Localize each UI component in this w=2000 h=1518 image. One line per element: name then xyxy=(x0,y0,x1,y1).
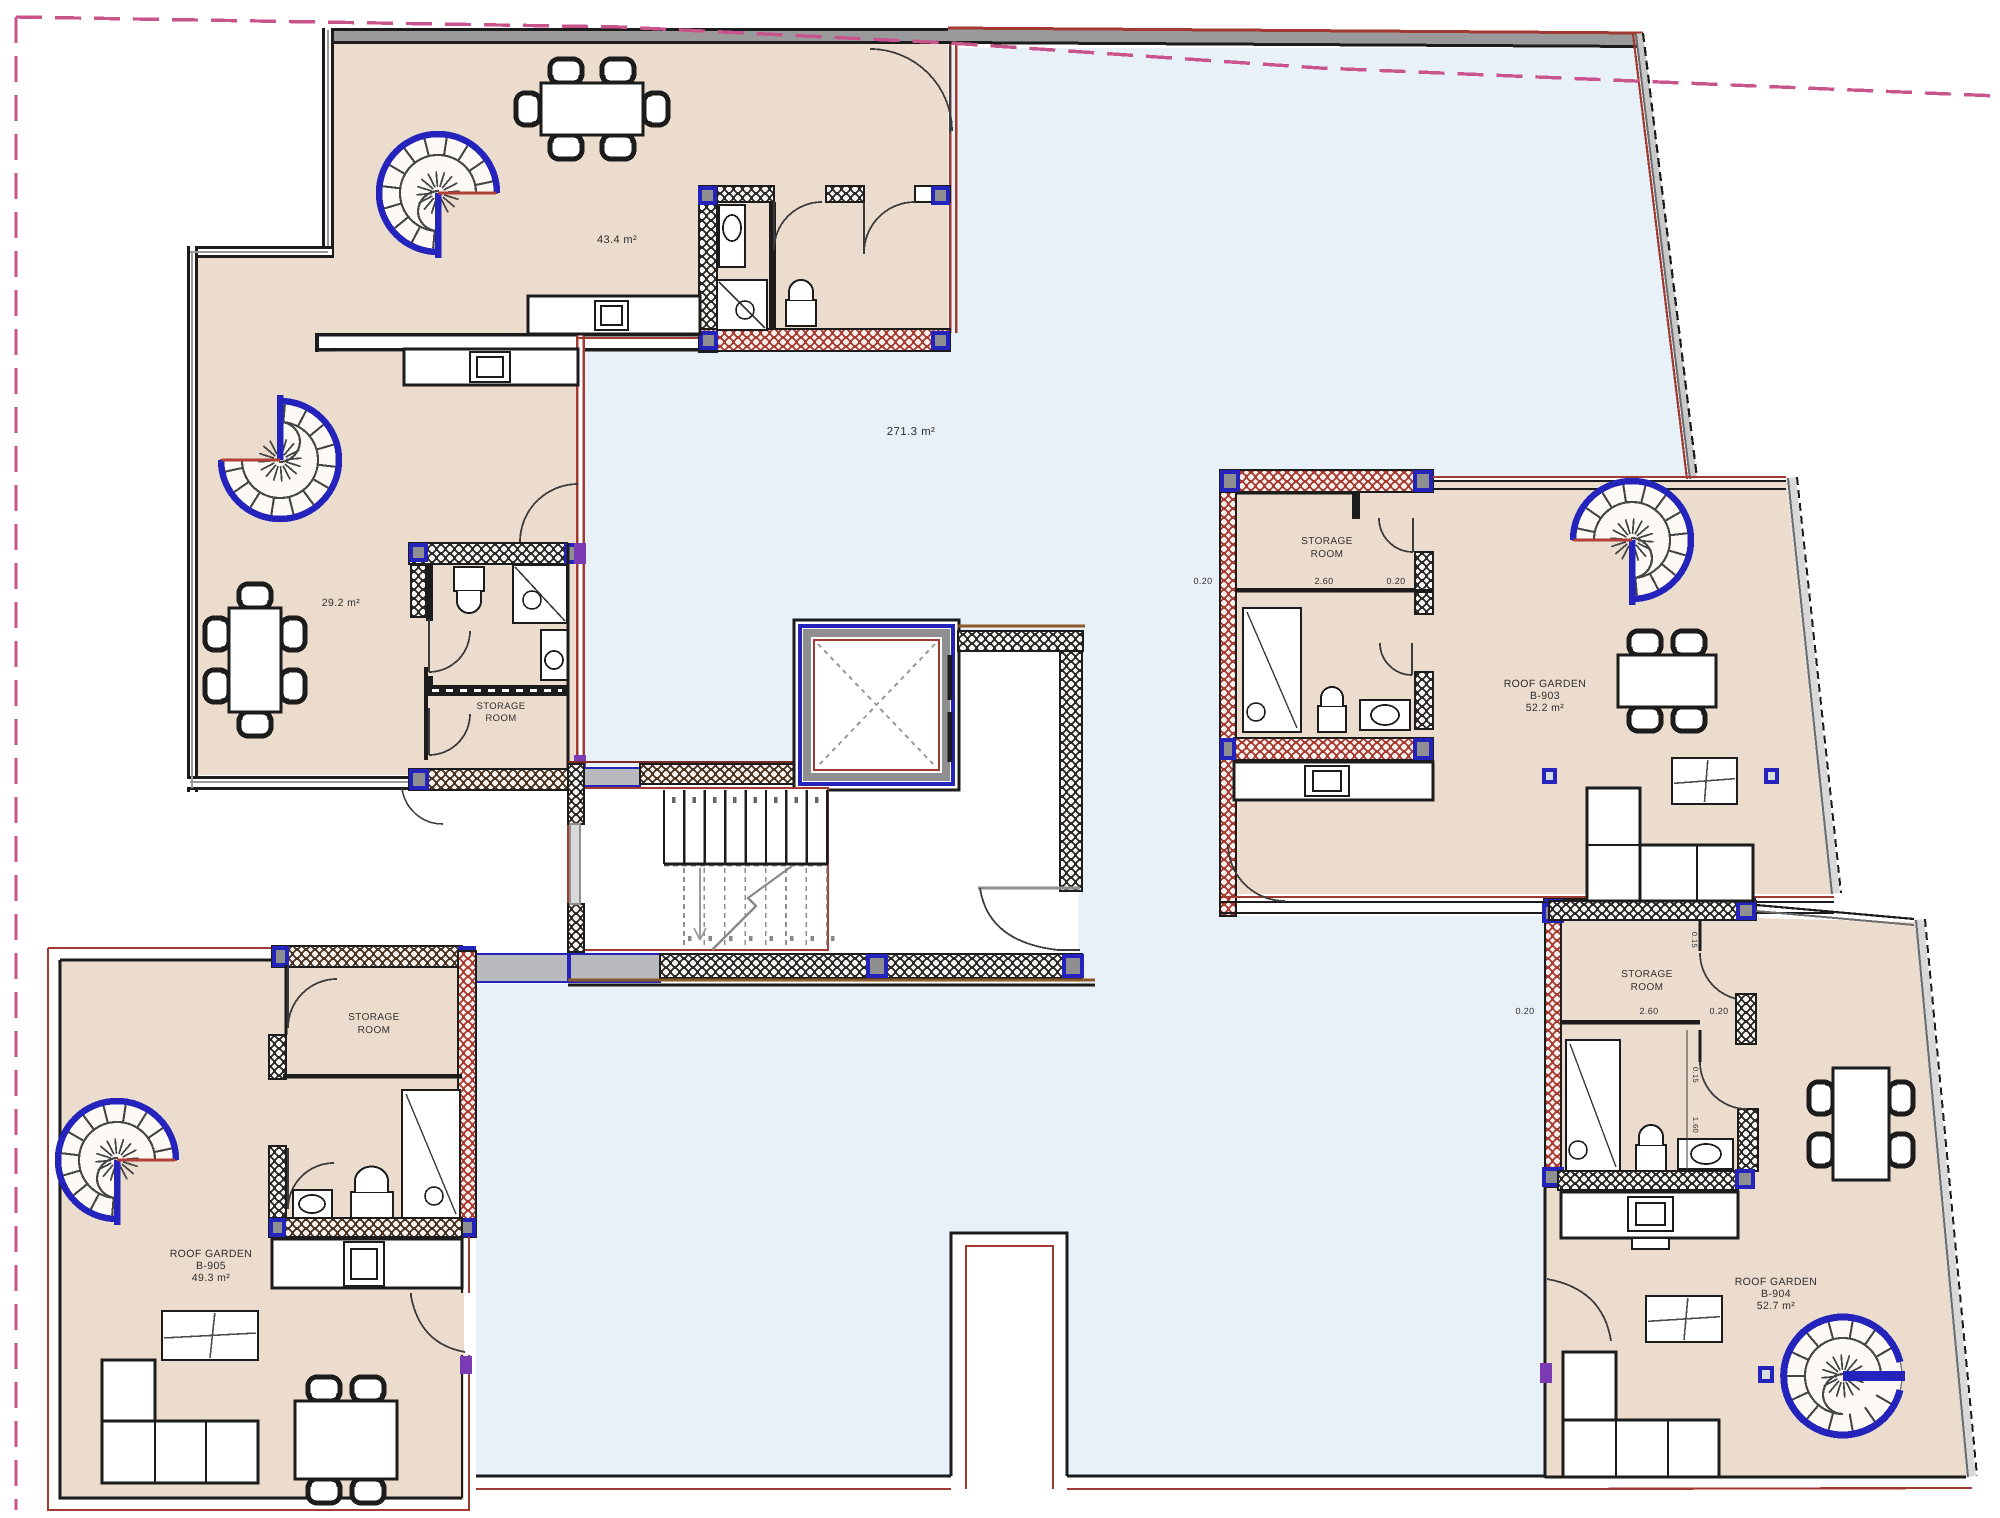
svg-text:STORAGE: STORAGE xyxy=(476,701,525,712)
svg-text:0.20: 0.20 xyxy=(1386,576,1405,586)
svg-text:ROOM: ROOM xyxy=(1631,982,1664,993)
svg-text:29.2 m²: 29.2 m² xyxy=(322,597,360,609)
svg-text:0.20: 0.20 xyxy=(1515,1006,1534,1016)
svg-text:STORAGE: STORAGE xyxy=(1301,536,1353,547)
svg-text:B-904: B-904 xyxy=(1761,1288,1791,1300)
svg-text:STORAGE: STORAGE xyxy=(1621,969,1673,980)
svg-text:0.15: 0.15 xyxy=(1690,932,1699,948)
svg-text:B-905: B-905 xyxy=(196,1260,226,1272)
svg-text:ROOM: ROOM xyxy=(1311,549,1344,560)
svg-text:ROOF GARDEN: ROOF GARDEN xyxy=(1504,678,1587,690)
svg-text:ROOM: ROOM xyxy=(485,713,516,724)
svg-text:1.60: 1.60 xyxy=(1691,1117,1700,1133)
svg-text:2.60: 2.60 xyxy=(1314,576,1333,586)
svg-text:49.3 m²: 49.3 m² xyxy=(192,1272,230,1284)
svg-text:ROOF GARDEN: ROOF GARDEN xyxy=(1735,1276,1818,1288)
svg-text:ROOM: ROOM xyxy=(358,1025,391,1036)
svg-text:52.2 m²: 52.2 m² xyxy=(1526,702,1564,714)
svg-text:0.20: 0.20 xyxy=(1709,1006,1728,1016)
svg-text:0.15: 0.15 xyxy=(1691,1067,1700,1083)
svg-text:52.7 m²: 52.7 m² xyxy=(1757,1300,1795,1312)
svg-text:43.4 m²: 43.4 m² xyxy=(597,234,637,246)
svg-text:271.3 m²: 271.3 m² xyxy=(887,426,936,438)
svg-text:2.60: 2.60 xyxy=(1639,1006,1658,1016)
svg-text:B-903: B-903 xyxy=(1530,690,1560,702)
svg-text:STORAGE: STORAGE xyxy=(348,1012,400,1023)
svg-text:ROOF GARDEN: ROOF GARDEN xyxy=(170,1248,253,1260)
svg-text:0.20: 0.20 xyxy=(1193,576,1212,586)
